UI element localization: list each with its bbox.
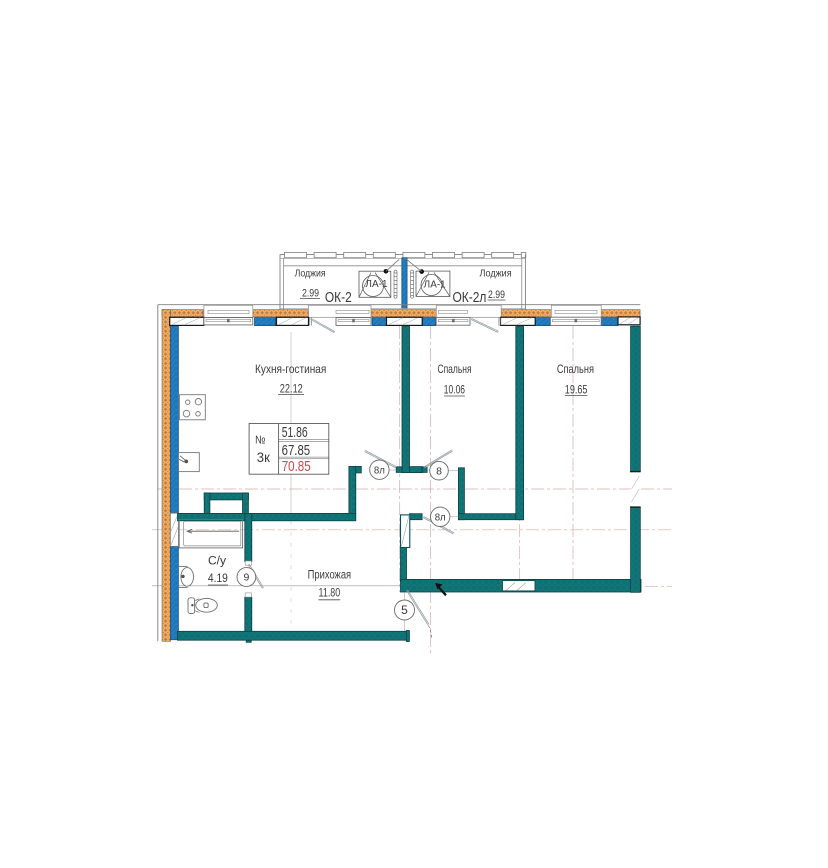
svg-text:67.85: 67.85 [282,443,311,459]
svg-text:2.99: 2.99 [488,289,505,301]
svg-text:8л: 8л [374,464,385,476]
svg-text:9: 9 [243,572,249,584]
svg-text:19.65: 19.65 [565,384,588,396]
svg-text:70.85: 70.85 [282,459,311,475]
svg-text:8л: 8л [435,512,446,524]
svg-text:ЛА-1: ЛА-1 [424,280,446,291]
svg-text:Кухня-гостиная: Кухня-гостиная [255,362,326,376]
svg-text:8: 8 [436,465,442,477]
svg-text:ЛА-1: ЛА-1 [365,279,387,290]
svg-text:5: 5 [401,603,408,617]
svg-text:Лоджия: Лоджия [295,268,326,279]
svg-text:2.99: 2.99 [302,288,319,300]
svg-text:51.86: 51.86 [282,425,308,441]
svg-text:Спальня: Спальня [557,362,594,376]
svg-text:С/у: С/у [208,554,227,568]
svg-text:22.12: 22.12 [280,383,303,395]
svg-text:3к: 3к [257,450,270,465]
svg-text:Спальня: Спальня [437,362,471,376]
svg-text:4.19: 4.19 [208,573,228,585]
svg-text:11.80: 11.80 [319,588,341,600]
svg-text:ОК-2л: ОК-2л [452,290,486,306]
svg-text:№: № [255,434,266,446]
svg-text:ОК-2: ОК-2 [325,290,352,306]
svg-text:10.06: 10.06 [444,385,465,397]
svg-text:Прихожая: Прихожая [308,568,352,582]
svg-text:Лоджия: Лоджия [480,268,512,279]
